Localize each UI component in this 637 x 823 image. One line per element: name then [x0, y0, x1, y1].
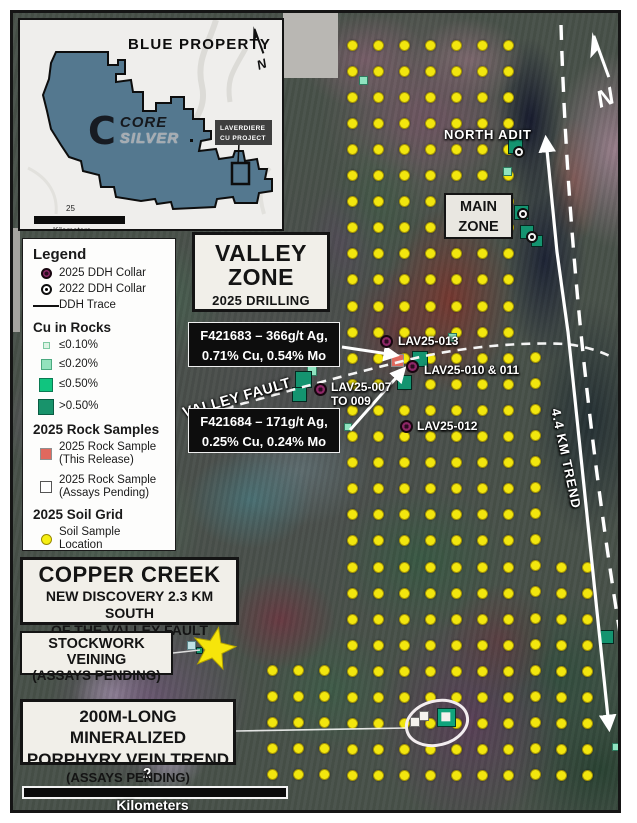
ddh-collar-2022: [517, 208, 529, 220]
legend-rock2: 2025 Rock Sample(Assays Pending): [59, 474, 156, 500]
legend: Legend 2025 DDH Collar 2022 DDH Collar D…: [22, 238, 176, 551]
porphyry-box: 200M-LONG MINERALIZED PORPHYRY VEIN TREN…: [20, 699, 236, 765]
main-zone-line2: ZONE: [446, 218, 511, 238]
main-zone-box: MAIN ZONE: [444, 193, 513, 239]
porphyry-line1: 200M-LONG MINERALIZED: [23, 706, 233, 749]
rock-release-icon: [33, 448, 59, 460]
legend-rock1-l2: (This Release): [59, 454, 134, 466]
legend-rock2-l1: 2025 Rock Sample: [59, 474, 156, 486]
ddh-collar-2025: [406, 360, 419, 373]
project-label-line1: LAVERDIERE: [220, 124, 272, 134]
rock-pending-icon: [33, 481, 59, 493]
ddh-collar-2025: [314, 383, 327, 396]
soil-sample-icon: [33, 534, 59, 545]
inset-scalebar: [34, 216, 125, 224]
cu-gt050-icon: [33, 399, 59, 415]
legend-soil-title: 2025 Soil Grid: [33, 507, 167, 522]
assay-callout-f421683: F421683 – 366g/t Ag, 0.71% Cu, 0.54% Mo: [188, 322, 340, 367]
cu-010-icon: [33, 342, 59, 349]
main-zone-line1: MAIN: [446, 198, 511, 218]
legend-ddh-2025: 2025 DDH Collar: [59, 267, 146, 280]
ddh-trace-icon: [33, 305, 59, 307]
legend-rock-title: 2025 Rock Samples: [33, 422, 167, 437]
copper-creek-box: COPPER CREEK NEW DISCOVERY 2.3 KM SOUTH …: [20, 557, 239, 625]
logo-silver-text: SILVER: [120, 131, 179, 147]
legend-rock1: 2025 Rock Sample(This Release): [59, 441, 156, 467]
callout2-line2: 0.25% Cu, 0.24% Mo: [189, 432, 339, 452]
ddh-collar-2025: [400, 420, 413, 433]
ddh-2025-collar-icon: [33, 268, 59, 279]
river-line: [229, 48, 246, 102]
lav25-013-label: LAV25-013: [398, 334, 458, 348]
valley-zone-title-1: VALLEY: [195, 241, 327, 265]
callout1-line2: 0.71% Cu, 0.54% Mo: [189, 346, 339, 366]
copper-creek-sub1: NEW DISCOVERY 2.3 KM SOUTH: [23, 588, 236, 622]
lav25-007-009-label: LAV25-007TO 009: [331, 380, 411, 409]
north-adit-label: NORTH ADIT: [444, 127, 532, 142]
valley-zone-title-2: ZONE: [195, 265, 327, 289]
svg-text:N: N: [255, 55, 270, 73]
ddh-2022-collar-icon: [33, 284, 59, 295]
stockwork-line2: (ASSAYS PENDING): [22, 668, 171, 683]
callout2-line1: F421684 – 171g/t Ag,: [189, 412, 339, 432]
legend-cu3: ≤0.50%: [59, 378, 98, 391]
valley-zone-box: VALLEY ZONE 2025 DRILLING: [192, 232, 330, 312]
ddh-collar-2022: [526, 231, 538, 243]
assay-callout-f421684: F421684 – 171g/t Ag, 0.25% Cu, 0.24% Mo: [188, 408, 340, 453]
cu-050-icon: [33, 378, 59, 392]
logo-c-mark: C: [88, 112, 116, 150]
ddh-collar-2025: [380, 335, 393, 348]
laverdiere-project-label: LAVERDIERE CU PROJECT: [215, 120, 272, 145]
porphyry-line3: (ASSAYS PENDING): [23, 770, 233, 785]
legend-ddh-trace: DDH Trace: [59, 299, 116, 312]
legend-ddh-2022: 2022 DDH Collar: [59, 283, 146, 296]
project-leader-line: [238, 143, 239, 163]
copper-creek-title: COPPER CREEK: [23, 562, 236, 588]
stockwork-box: STOCKWORK VEINING (ASSAYS PENDING): [20, 631, 173, 675]
scalebar-unit: Kilometers: [95, 797, 210, 810]
lav25-007-line1: LAV25-007: [331, 380, 391, 394]
valley-zone-subtitle: 2025 DRILLING: [195, 293, 327, 308]
stockwork-line1: STOCKWORK VEINING: [22, 636, 171, 668]
legend-cu4: >0.50%: [59, 400, 98, 413]
callout1-line1: F421683 – 366g/t Ag,: [189, 326, 339, 346]
map-figure: N NORTH ADIT VALLEY FAULT 4.4 KM TREND L…: [0, 0, 637, 823]
lav25-012-label: LAV25-012: [417, 419, 477, 433]
lav25-007-line2: TO 009: [331, 394, 371, 408]
lav25-010-011-label: LAV25-010 & 011: [424, 363, 519, 377]
legend-title: Legend: [33, 246, 167, 263]
porphyry-line2: PORPHYRY VEIN TREND: [23, 749, 233, 770]
cu-020-icon: [33, 359, 59, 370]
legend-soil-label: Soil Sample Location: [59, 526, 167, 552]
legend-rock1-l1: 2025 Rock Sample: [59, 441, 156, 453]
legend-cu1: ≤0.10%: [59, 339, 98, 352]
legend-cu2: ≤0.20%: [59, 358, 98, 371]
core-silver-logo: C CORE SILVER: [88, 112, 179, 150]
claim-dot: [190, 139, 193, 142]
inset-scale-value: 25: [66, 204, 75, 213]
inset-map: N BLUE PROPERTY C CORE SILVER LAVERDIERE…: [18, 18, 284, 231]
project-label-line2: CU PROJECT: [220, 134, 272, 144]
legend-rock2-l2: (Assays Pending): [59, 487, 149, 499]
map-area: N NORTH ADIT VALLEY FAULT 4.4 KM TREND L…: [13, 13, 618, 810]
legend-cu-title: Cu in Rocks: [33, 320, 167, 335]
inset-title: BLUE PROPERTY: [128, 36, 271, 53]
inset-scale-unit: Kilometers: [53, 226, 91, 231]
ddh-collar-2022: [513, 146, 525, 158]
logo-core-text: CORE: [120, 115, 179, 131]
river-line: [28, 168, 56, 214]
